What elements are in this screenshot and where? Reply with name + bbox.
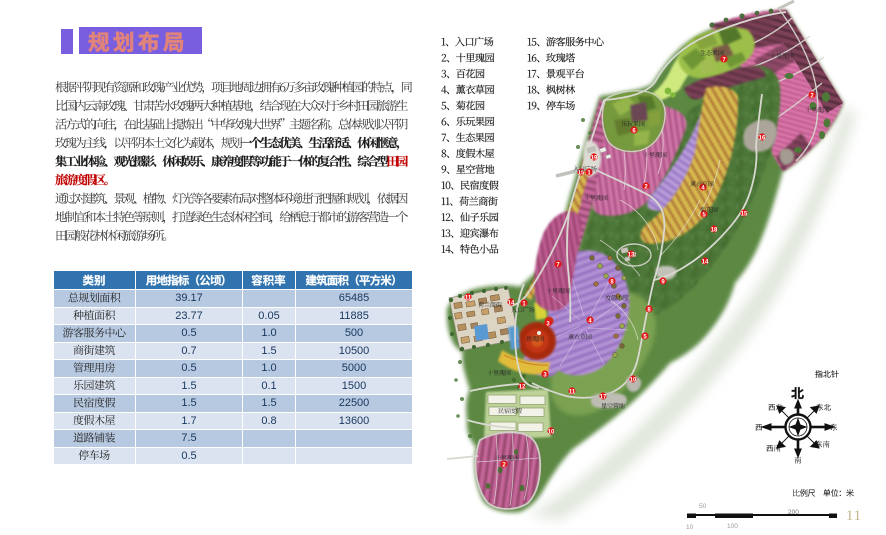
- svg-text:12: 12: [519, 384, 526, 390]
- svg-text:18: 18: [711, 227, 718, 233]
- svg-text:15: 15: [741, 211, 748, 217]
- svg-text:14: 14: [508, 300, 515, 306]
- svg-text:16: 16: [759, 135, 766, 141]
- svg-text:10: 10: [630, 377, 637, 383]
- svg-text:11: 11: [465, 295, 472, 301]
- svg-text:11: 11: [569, 389, 576, 395]
- svg-text:10: 10: [548, 429, 555, 435]
- svg-text:17: 17: [600, 394, 607, 400]
- svg-text:13: 13: [628, 252, 635, 258]
- svg-text:14: 14: [702, 259, 709, 265]
- svg-text:100: 100: [727, 523, 738, 530]
- svg-text:10: 10: [686, 524, 694, 531]
- svg-text:19: 19: [591, 155, 598, 161]
- svg-text:50: 50: [699, 503, 707, 510]
- svg-text:15: 15: [578, 170, 585, 176]
